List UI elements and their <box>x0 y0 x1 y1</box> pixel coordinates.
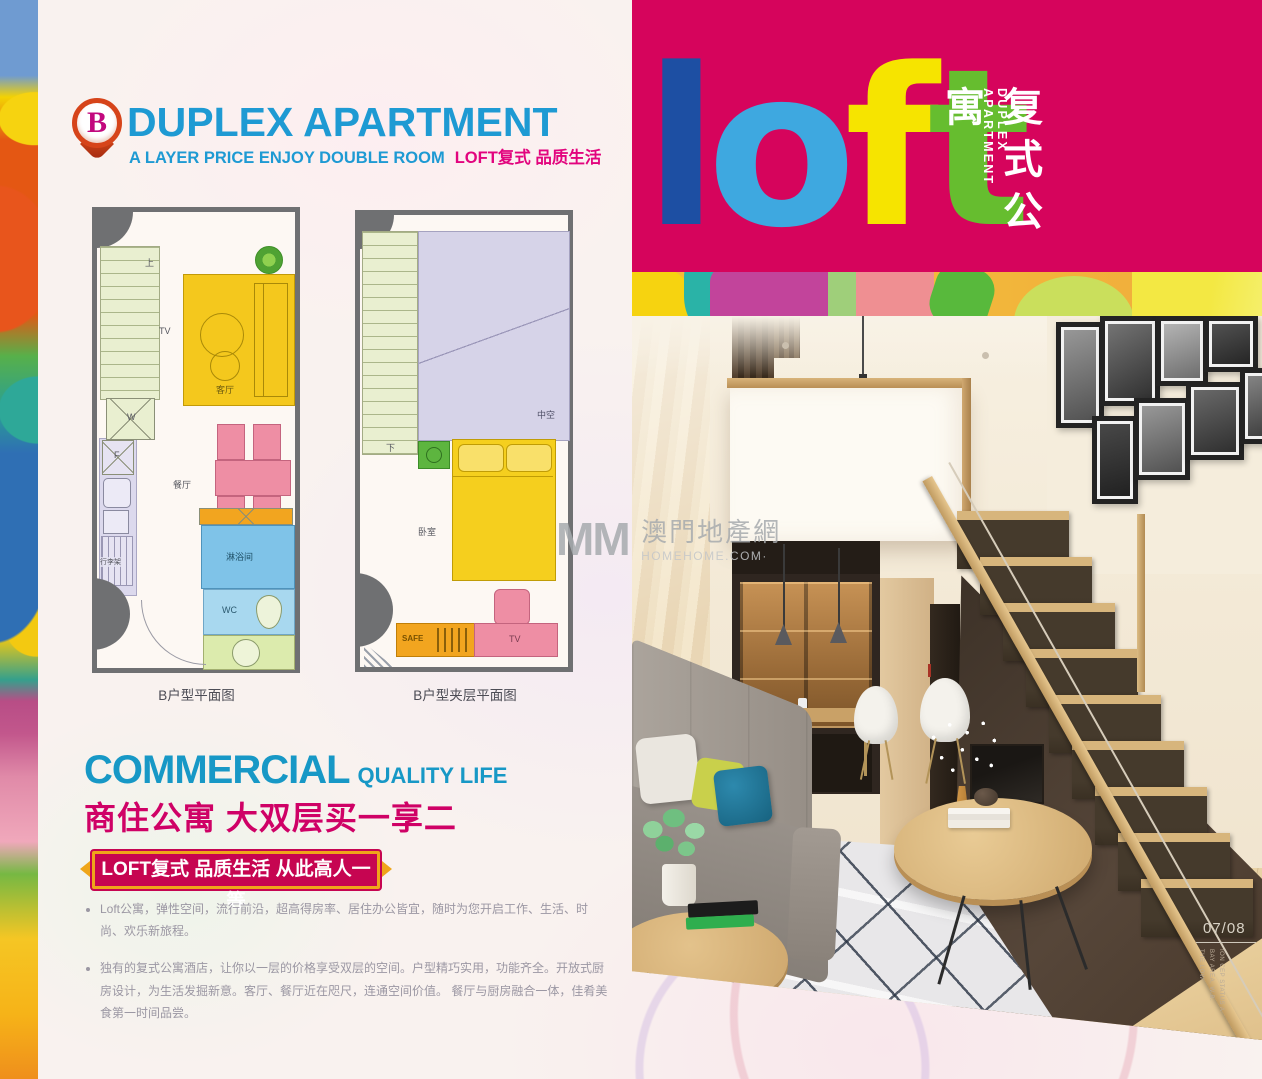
pillow-teal <box>713 765 773 827</box>
commercial-headline-cn: 商住公寓 大双层买一享二 <box>84 793 457 839</box>
plant-leaves <box>636 804 720 868</box>
photo-frame <box>1240 368 1262 444</box>
pillow-symbol <box>458 444 504 472</box>
plant-symbol <box>255 246 283 274</box>
label-shower: 淋浴间 <box>226 550 253 563</box>
watermark-site-cn: 澳門地產網 <box>641 512 781 549</box>
wall-column <box>355 573 393 647</box>
sofa-armrest <box>787 827 842 961</box>
commercial-heading-main: COMMERCIAL <box>84 748 350 792</box>
fine-print-line: THE LOW <box>1196 949 1205 1023</box>
wave-band <box>632 272 1262 316</box>
chair-symbol <box>217 424 245 460</box>
decor-bowl <box>974 788 998 806</box>
counter-symbol <box>103 510 129 534</box>
void-area: 中空 <box>418 231 570 441</box>
table-symbol <box>210 351 240 381</box>
footer-fine-print: THE LOW BAY AREA, W.B. ION CEP STATUS A <box>1196 949 1262 1023</box>
wc-room: WC <box>203 589 295 635</box>
label-bedroom: 卧室 <box>418 525 436 538</box>
photo-frame <box>1056 322 1104 428</box>
decor-shape <box>453 476 553 477</box>
interior-photo <box>632 316 1262 1040</box>
decor-shape <box>924 272 1000 316</box>
kitchen-counter <box>199 508 293 525</box>
fine-print-line: ION CEP STATUS A <box>1216 949 1225 1023</box>
commercial-heading: COMMERCIALQUALITY LIFE <box>84 748 507 793</box>
subtitle-cn: LOFT复式 品质生活 <box>455 149 602 167</box>
chair-symbol <box>253 424 281 460</box>
bed-symbol <box>452 439 556 581</box>
toilet-symbol <box>256 595 282 629</box>
decor-shape <box>856 272 934 316</box>
washer-symbol: W <box>106 398 155 440</box>
location-pin-icon: B <box>72 98 122 162</box>
subtitle-en: A LAYER PRICE ENJOY DOUBLE ROOM <box>129 149 445 167</box>
floorplan-2: 下 中空 卧室 SAFE TV <box>355 210 573 672</box>
page-subtitle: A LAYER PRICE ENJOY DOUBLE ROOMLOFT复式 品质… <box>129 144 601 168</box>
floorplan-1: 上 TV 客厅 餐厅 F 行李架 W 淋浴间 WC <box>92 207 300 673</box>
wall-corner <box>97 212 133 248</box>
decor-shape <box>426 447 442 463</box>
bullet-item: 独有的复式公寓酒店，让你以一层的价格享受双层的空间。户型精巧实用，功能齐全。开放… <box>100 957 612 1024</box>
dining-table-symbol <box>215 460 291 496</box>
loft-letter-l: l <box>644 23 707 276</box>
loft-banner: loft 复式公寓 DUPLEX APARTMENT <box>632 0 1262 272</box>
watermark: MM 澳門地產網 HOMEHOME.COM· <box>556 512 781 566</box>
sink-symbol <box>103 478 131 508</box>
table-leg <box>655 1001 671 1040</box>
wardrobe-symbol: SAFE <box>396 623 476 657</box>
label-tv2: TV <box>509 634 521 644</box>
hanger-lines <box>437 628 471 652</box>
hatch-area <box>364 643 394 667</box>
ribbon-tip-left <box>80 861 90 877</box>
feature-bullets: Loft公寓，弹性空间，流行前沿，超高得房率、居住办公皆宜，随时为您开启工作、生… <box>86 898 612 1039</box>
pillow-symbol <box>506 444 552 472</box>
loft-letter-o: o <box>707 23 845 276</box>
loft-letter-f: f <box>845 23 928 276</box>
ceiling-light <box>782 342 789 349</box>
fine-print-line: BAY AREA, W.B. <box>1206 949 1215 1023</box>
ribbon-banner: LOFT复式 品质生活 从此高人一等 <box>92 851 380 889</box>
floorplan1-caption: B户型平面图 <box>124 684 269 704</box>
door-handle <box>928 664 931 677</box>
chair-symbol <box>494 589 530 625</box>
label-safe: SAFE <box>402 634 423 643</box>
photo-frame <box>1186 382 1244 460</box>
stairs-area <box>100 246 160 400</box>
railing-post <box>1137 514 1145 692</box>
page-title: DUPLEX APARTMENT <box>127 99 558 146</box>
tv-cabinet-symbol: TV <box>474 623 558 657</box>
label-fridge: F <box>114 450 120 460</box>
vertical-title-en: DUPLEX APARTMENT <box>981 88 1009 253</box>
label-luggage: 行李架 <box>100 557 121 567</box>
pin-circle: B <box>72 98 122 148</box>
stairs-area <box>362 231 418 455</box>
pendant-wire <box>783 544 785 628</box>
label-washer: W <box>127 412 136 422</box>
brochure-page: B DUPLEX APARTMENT A LAYER PRICE ENJOY D… <box>0 0 1262 1079</box>
living-room: 客厅 <box>183 274 295 406</box>
commercial-heading-sub: QUALITY LIFE <box>358 763 508 788</box>
book-stack <box>948 808 1010 828</box>
footer-divider <box>1196 942 1256 943</box>
label-wc: WC <box>222 605 237 615</box>
label-up: 上 <box>145 256 154 269</box>
decor-shape <box>1014 276 1134 316</box>
decor-shape <box>710 272 840 316</box>
bullet-item: Loft公寓，弹性空间，流行前沿，超高得房率、居住办公皆宜，随时为您开启工作、生… <box>100 898 612 942</box>
table-leg <box>722 1003 736 1040</box>
decor-shape <box>1132 272 1262 316</box>
nightstand-symbol <box>418 441 450 469</box>
loft-box-trim <box>727 378 971 388</box>
watermark-site-en: HOMEHOME.COM· <box>641 549 781 563</box>
sofa-symbol <box>254 283 288 397</box>
badge-letter: B <box>87 106 107 139</box>
ceiling-light <box>982 352 989 359</box>
decor-shape <box>828 272 856 316</box>
bath-zone <box>203 635 295 670</box>
pendant-wire <box>838 548 840 626</box>
door-swing <box>141 600 206 665</box>
label-tv: TV <box>159 326 171 336</box>
photo-frame <box>1100 316 1160 406</box>
decor-shape <box>632 272 692 316</box>
label-void: 中空 <box>537 408 555 421</box>
basin-symbol <box>232 639 260 667</box>
label-down: 下 <box>386 441 395 454</box>
footer-block: 07/08 THE LOW BAY AREA, W.B. ION CEP STA… <box>1196 920 1262 1023</box>
page-number: 07/08 <box>1196 920 1262 937</box>
floorplan2-caption: B户型夹层平面图 <box>390 684 540 704</box>
label-dining: 餐厅 <box>173 478 191 491</box>
shower-room: 淋浴间 <box>201 525 295 589</box>
label-living: 客厅 <box>216 383 234 396</box>
plant-pot <box>662 864 696 906</box>
ribbon-tip-right <box>382 861 392 877</box>
photo-frame <box>1156 316 1208 386</box>
photo-frame <box>1092 416 1138 504</box>
flowers <box>924 714 1004 792</box>
photo-frame <box>1134 398 1190 480</box>
fridge-symbol: F <box>102 440 134 475</box>
photo-frame <box>1204 316 1258 372</box>
left-decor-strip <box>0 0 38 1079</box>
watermark-mm: MM <box>556 513 629 565</box>
